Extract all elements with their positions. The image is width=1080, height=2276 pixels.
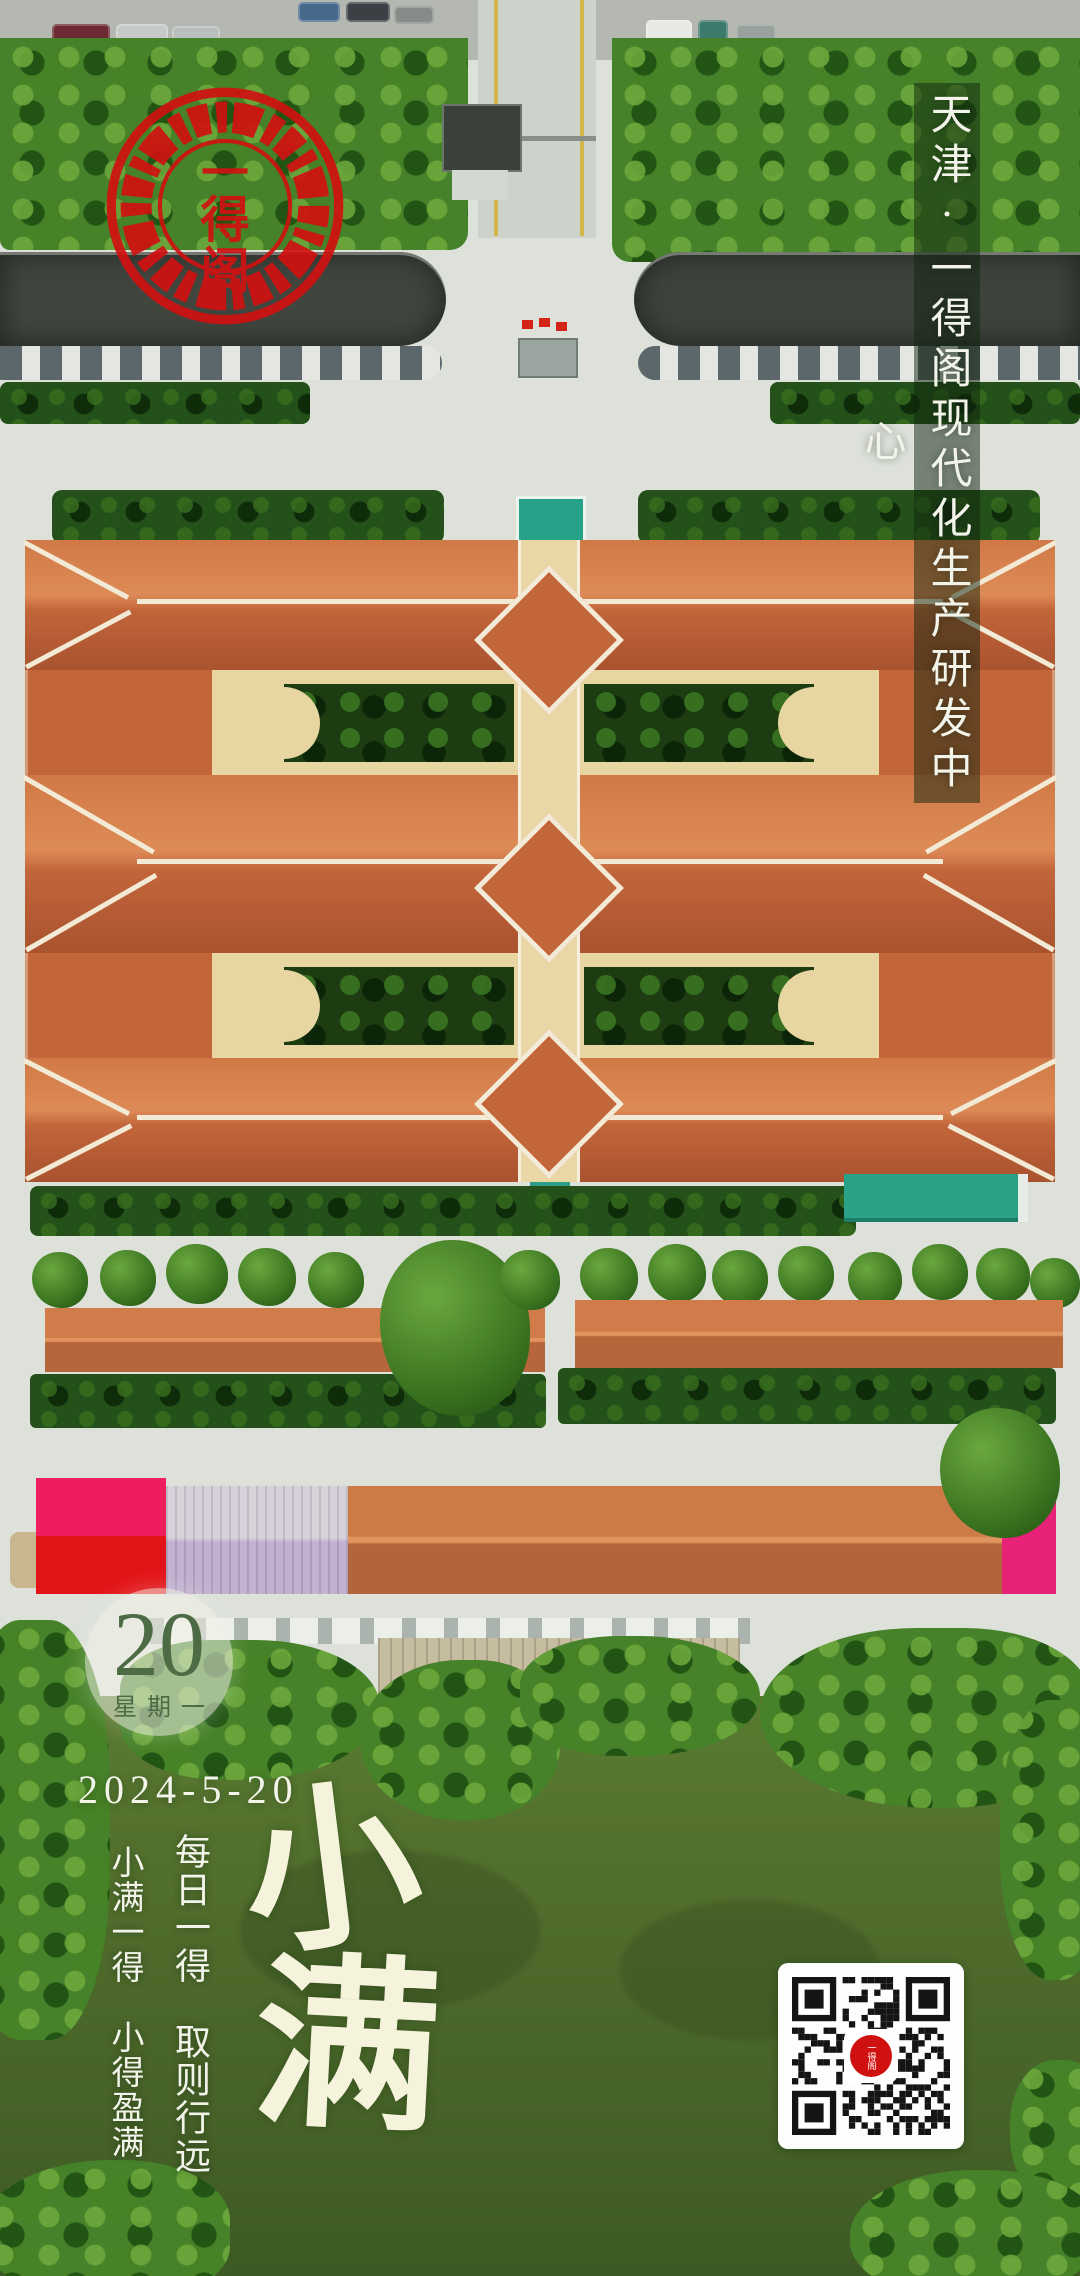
parked-car	[394, 6, 434, 24]
office-building-right-facade	[638, 346, 1080, 380]
qr-seal-chars: 一得阁	[867, 2043, 876, 2070]
tree	[238, 1248, 296, 1306]
qr-center-seal-icon: 一得阁	[850, 2035, 892, 2077]
courtyard-walkway-cap	[248, 687, 320, 759]
courtyard-walkway-cap	[778, 687, 850, 759]
parked-car	[298, 2, 340, 22]
parked-car	[346, 2, 390, 22]
solar-term-char-bottom: 满	[249, 1951, 444, 2146]
solar-term-calligraphy: 小 满	[230, 1780, 490, 2200]
tree	[976, 1248, 1030, 1302]
tree	[648, 1244, 706, 1302]
office-building-right-roof	[634, 252, 1080, 346]
pond-tree-fringe	[520, 1636, 760, 1756]
tree	[848, 1252, 902, 1306]
day-number: 20	[113, 1602, 205, 1687]
seal-char: 得	[200, 193, 250, 248]
tree	[778, 1246, 834, 1302]
slogan-term: 小满一得 小得盈满	[100, 1845, 148, 2185]
courtyard-walkway-cap	[778, 970, 850, 1042]
tree-band	[612, 38, 1080, 262]
red-flag	[522, 320, 533, 329]
calendar-poster: 一 得 阁 天津·一得阁现代化生产研发中心 20 星期一 2024-5-20 每…	[0, 0, 1080, 2276]
qr-code: 一得阁	[778, 1963, 964, 2149]
tree	[308, 1252, 364, 1308]
guard-house	[452, 170, 508, 200]
slogan-daily: 每日一得 取则行远	[164, 1833, 216, 2193]
warehouse-section-orange	[348, 1486, 1002, 1594]
warehouse-section-gray	[166, 1486, 348, 1594]
red-flag	[539, 318, 550, 327]
pond-tree-fringe	[1000, 1700, 1080, 1980]
teal-roof-building	[844, 1174, 1028, 1222]
red-flag	[556, 322, 567, 331]
tree	[32, 1252, 88, 1308]
guard-house-roof	[442, 104, 522, 172]
brand-seal-icon: 一 得 阁	[98, 82, 352, 330]
workshop-building	[575, 1300, 1063, 1368]
date-circle: 20 星期一	[85, 1588, 233, 1736]
tree	[712, 1250, 768, 1306]
tree	[912, 1244, 968, 1300]
tree	[100, 1250, 156, 1306]
weekday-label: 星期一	[103, 1687, 215, 1722]
hedge-row	[30, 1186, 856, 1236]
road-lane-line	[580, 0, 584, 236]
tree	[580, 1248, 638, 1306]
courtyard-walkway-cap	[248, 970, 320, 1042]
location-title: 天津·一得阁现代化生产研发中心	[914, 91, 980, 797]
seal-char: 阁	[200, 245, 250, 300]
qr-center-logo: 一得阁	[844, 2029, 898, 2083]
warehouse-section-red	[36, 1536, 166, 1594]
tree	[166, 1244, 228, 1304]
location-title-band: 天津·一得阁现代化生产研发中心	[914, 83, 980, 803]
warehouse-section-pink	[36, 1478, 166, 1536]
flag-platform	[518, 338, 578, 378]
tree	[500, 1250, 560, 1310]
hedge-row	[0, 382, 310, 424]
office-building-left-facade	[0, 346, 442, 380]
hedge-row	[52, 490, 444, 544]
